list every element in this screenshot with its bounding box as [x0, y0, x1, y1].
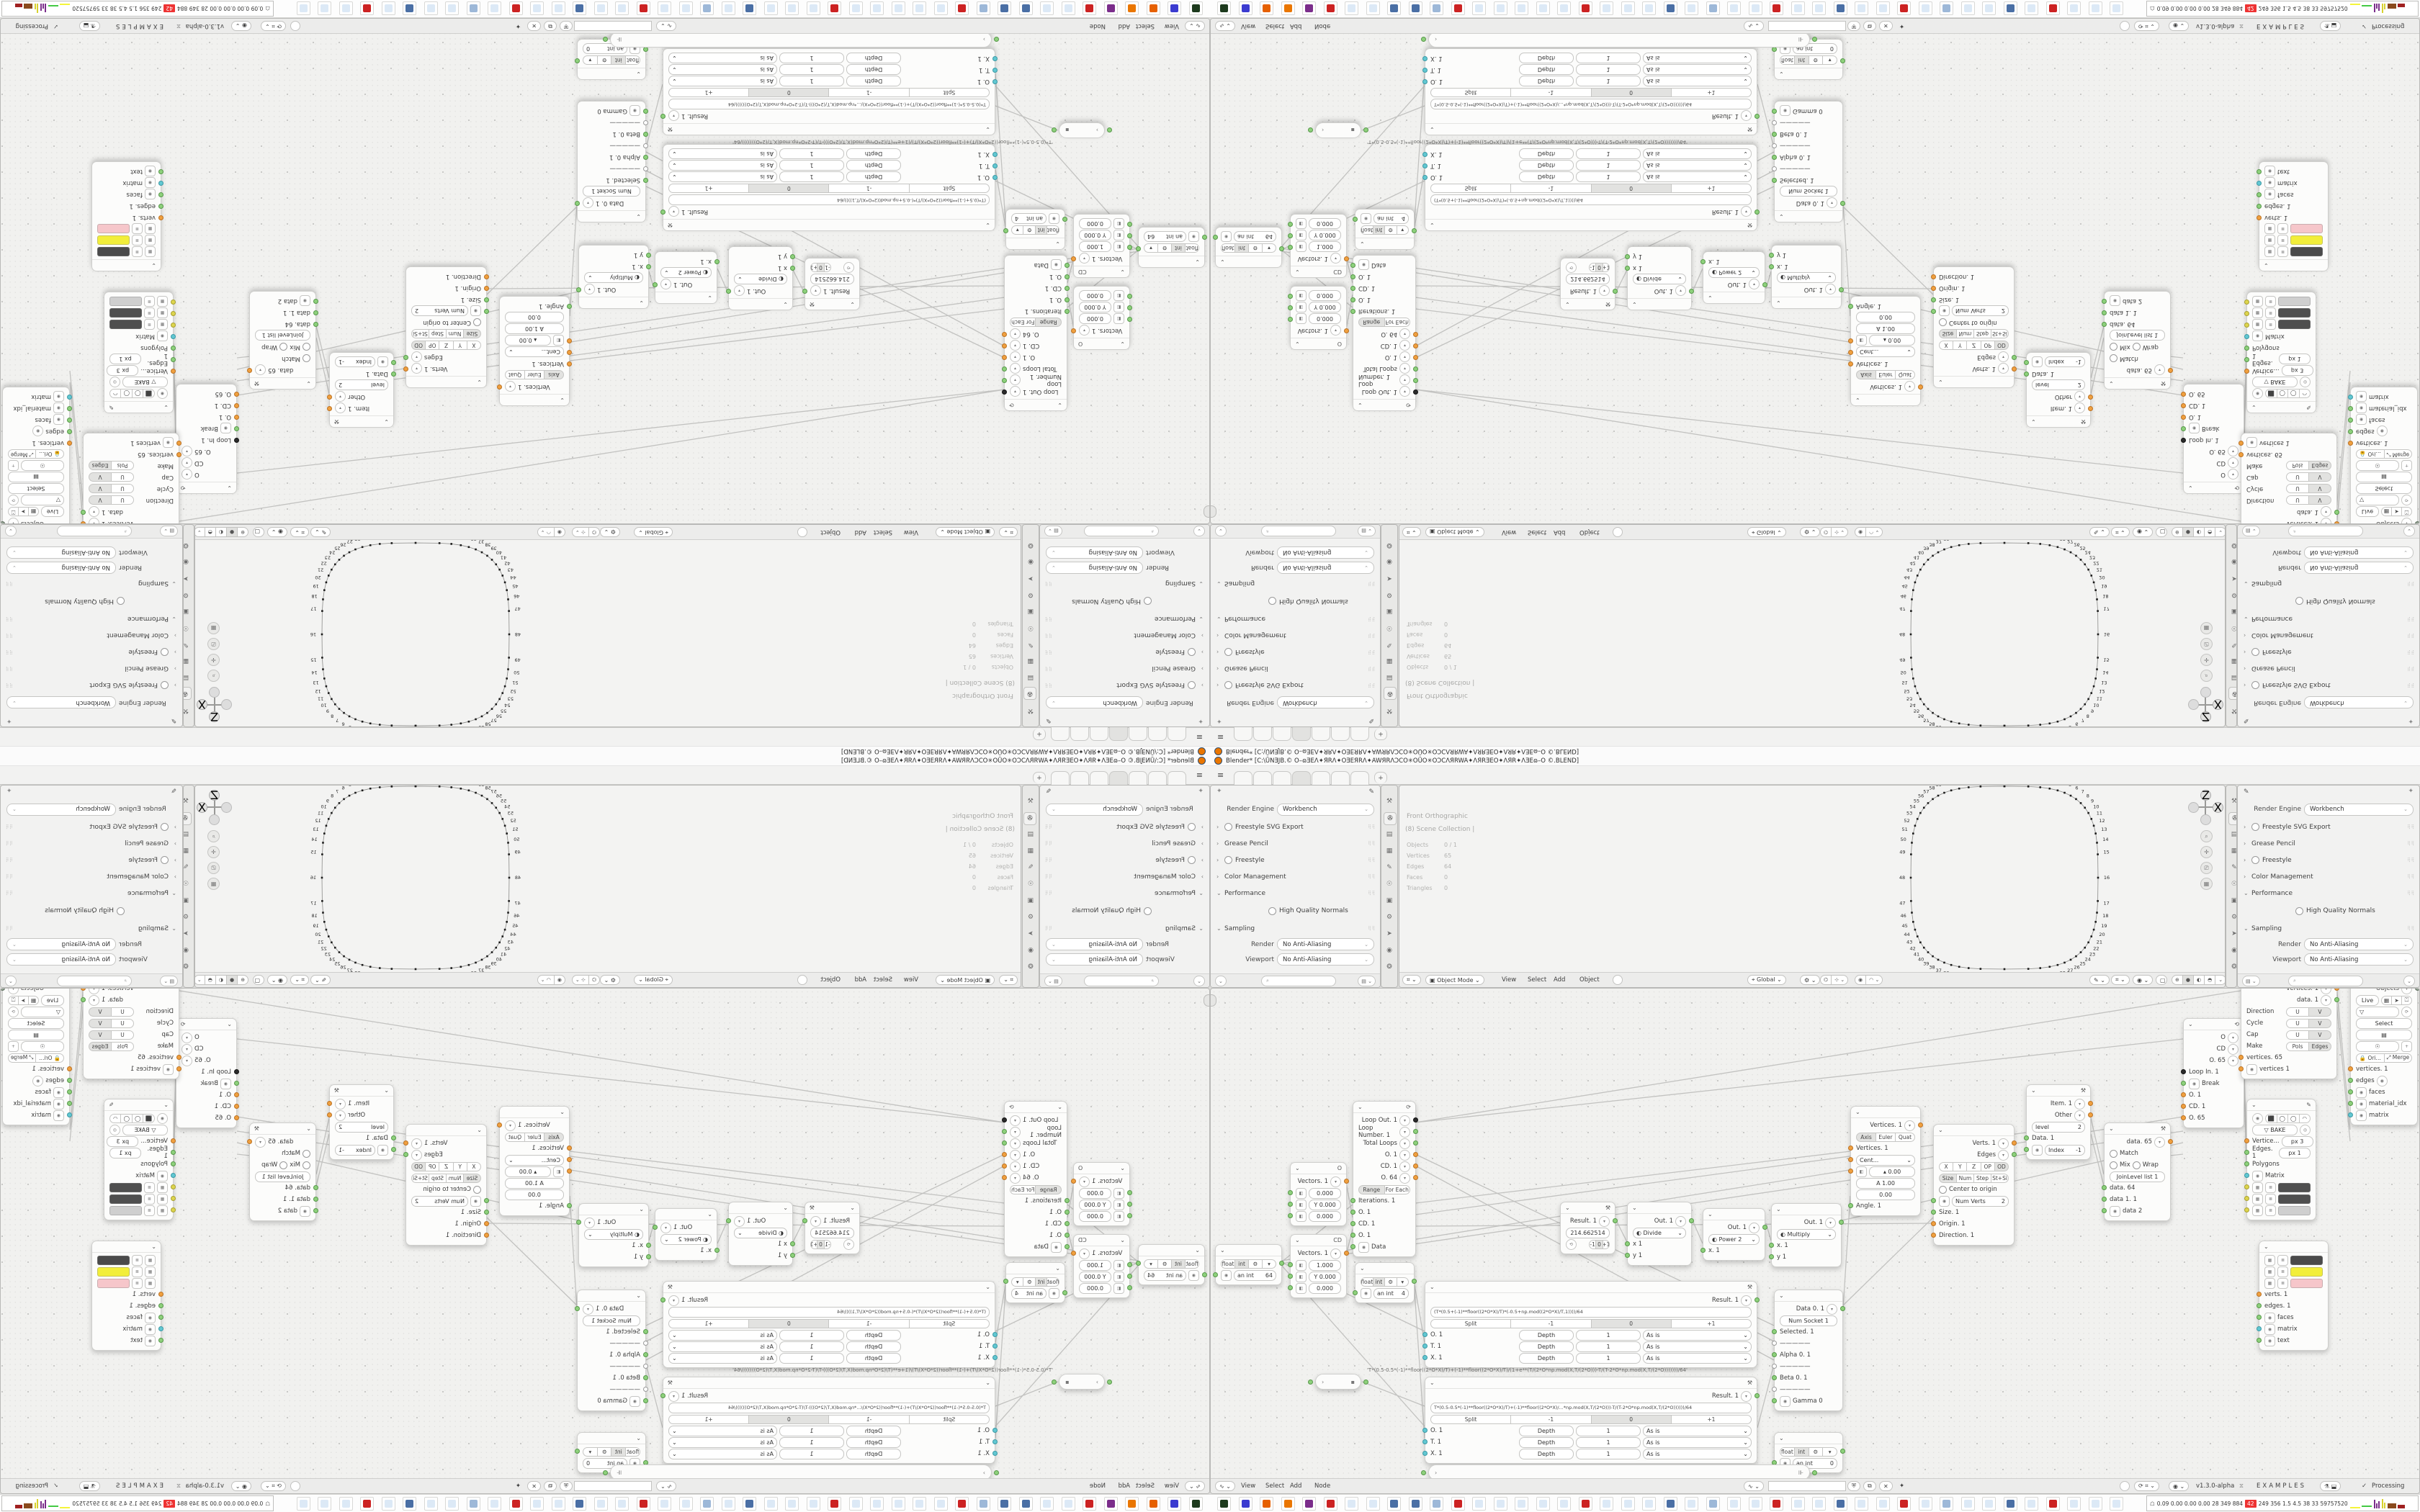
collapse-chevron-icon[interactable]: ⌄: [850, 301, 855, 307]
taskbar-app-note[interactable]: [1876, 1497, 1890, 1511]
value-field[interactable]: 0.000: [1079, 314, 1111, 325]
taskbar-app-gear[interactable]: [1083, 1, 1097, 15]
output-socket[interactable]: [660, 210, 665, 215]
input-socket[interactable]: [643, 47, 648, 52]
gizmo-axis-minus-z[interactable]: [209, 814, 220, 825]
properties-row-color-management[interactable]: ›Color Management⢿⢿: [1211, 627, 1380, 644]
display-toggle-button[interactable]: ⬛: [2265, 1114, 2277, 1123]
collapse-chevron-icon[interactable]: ⌄: [163, 1102, 169, 1108]
node-header[interactable]: ⌄⚒: [805, 298, 859, 310]
segment-button[interactable]: float: [1185, 244, 1199, 253]
properties-tab-icon-5[interactable]: ☉: [2228, 622, 2237, 634]
section-chevron-icon[interactable]: ⌄: [1216, 925, 1222, 932]
option-checkbox[interactable]: [117, 598, 125, 606]
color-swatch[interactable]: [2278, 1183, 2311, 1192]
properties-row-high-quality-normals[interactable]: High Quality Normals: [1, 901, 182, 920]
pin-icon[interactable]: ✦: [1198, 788, 1204, 795]
wrap-dropdown[interactable]: As is⌄: [1643, 149, 1752, 160]
input-socket[interactable]: [2257, 1303, 2262, 1308]
segment-button[interactable]: Num: [1957, 1174, 1974, 1183]
output-socket[interactable]: [1413, 366, 1418, 372]
node-header[interactable]: ⌄O: [1074, 338, 1129, 349]
taskbar-app-purple[interactable]: [1302, 1497, 1316, 1511]
value-field[interactable]: ▴ 0.00: [1869, 336, 1915, 346]
input-socket[interactable]: [391, 372, 396, 377]
label-value-field[interactable]: Num Verts2: [1952, 306, 2009, 317]
taskbar-app-note[interactable]: [2110, 1497, 2123, 1511]
node-number-4[interactable]: ⌄floatint⚙▾◉an int4: [1005, 1262, 1065, 1303]
section-chevron-icon[interactable]: ⌄: [171, 925, 176, 932]
update-group-button[interactable]: ⟳ ⌗ ⌄: [261, 1481, 286, 1491]
socket-dropdown[interactable]: ▾: [1825, 1218, 1836, 1228]
option-checkbox[interactable]: [1144, 598, 1152, 606]
taskbar-app-note[interactable]: [1812, 1497, 1826, 1511]
taskbar-app-note[interactable]: [1041, 1497, 1054, 1511]
socket-dropdown[interactable]: ▾: [2228, 1044, 2238, 1055]
swatch-option-icon[interactable]: ▦: [2252, 1194, 2263, 1205]
table-cell-button[interactable]: Edges: [89, 462, 111, 471]
add-button[interactable]: +: [8, 461, 19, 472]
refresh-icon[interactable]: ⟳: [2401, 495, 2412, 506]
orientation-dropdown[interactable]: ⌖ Global ⌄: [1747, 527, 1786, 537]
segment-button[interactable]: Range: [1358, 318, 1385, 328]
input-socket[interactable]: [313, 1197, 318, 1202]
socket-toggle-icon[interactable]: ◉: [163, 438, 174, 449]
swatch-option-icon[interactable]: ≣: [144, 320, 155, 330]
properties-row-grease-pencil[interactable]: ›Grease Pencil⢿⢿: [1, 660, 182, 677]
gizmo-axis-x[interactable]: X: [197, 802, 207, 813]
section-chevron-icon[interactable]: ›: [1198, 682, 1204, 688]
input-socket[interactable]: [1772, 132, 1777, 137]
properties-row-render[interactable]: RenderNo Anti-Aliasing⌄: [1211, 937, 1380, 952]
socket-dropdown[interactable]: ▾: [734, 286, 745, 297]
slider-icon[interactable]: ◉: [470, 1196, 481, 1207]
collapse-chevron-icon[interactable]: ⌄: [1120, 269, 1125, 275]
properties-row-render-engine[interactable]: Render EngineWorkbench⌄: [1211, 693, 1380, 712]
input-socket[interactable]: [234, 1081, 239, 1086]
output-socket[interactable]: [1840, 201, 1845, 206]
segment-button[interactable]: +1: [1672, 1415, 1752, 1424]
section-chevron-icon[interactable]: ›: [2244, 824, 2249, 830]
viewer-option-button[interactable]: ➤: [18, 508, 28, 517]
section-chevron-icon[interactable]: ›: [1198, 840, 1204, 847]
input-socket[interactable]: [1700, 1248, 1706, 1253]
swatch-option-icon[interactable]: ▦: [2252, 308, 2263, 319]
socket-toggle-icon[interactable]: ◉: [145, 1313, 156, 1323]
taskbar-app-blender[interactable]: [1126, 1, 1139, 15]
socket-toggle-icon[interactable]: ◉: [145, 1336, 156, 1346]
node-formula-node-1[interactable]: ⌄⚒Result. 1▾(T*(0.5+(-1)**floor((2*O*X)/…: [663, 144, 995, 231]
pin-icon[interactable]: ✦: [2408, 717, 2414, 724]
socket-dropdown[interactable]: ▾: [810, 1216, 821, 1227]
input-socket[interactable]: [171, 1196, 176, 1201]
output-socket[interactable]: [403, 1140, 408, 1146]
input-socket[interactable]: [567, 304, 572, 309]
workspace-tab[interactable]: [1109, 771, 1128, 786]
wrap-dropdown[interactable]: As is⌄: [668, 1341, 777, 1352]
socket-dropdown[interactable]: ▾: [2321, 507, 2331, 518]
segment-button[interactable]: float: [1221, 1259, 1235, 1269]
properties-row-freestyle-svg-export[interactable]: ›Freestyle SVG Export⢿⢿: [1211, 677, 1380, 693]
input-socket[interactable]: [2238, 1055, 2244, 1060]
gizmo-axis-minus-x[interactable]: [221, 802, 232, 813]
input-socket[interactable]: [2257, 181, 2262, 186]
input-socket[interactable]: [67, 1089, 72, 1094]
properties-tab-icon-4[interactable]: ✎: [1025, 639, 1036, 650]
node-header[interactable]: ⌄: [578, 68, 645, 79]
output-socket[interactable]: [1052, 127, 1057, 132]
operation-dropdown[interactable]: ◐ Multiply⌄: [1777, 273, 1836, 284]
pin-icon[interactable]: ✦: [1216, 717, 1222, 724]
node-math-power[interactable]: ⌄Out. 1▾◐ Power 2⌄x. 1: [655, 251, 717, 304]
segment-button[interactable]: ⚙: [597, 56, 611, 66]
collapse-chevron-icon[interactable]: ›: [1096, 1379, 1098, 1385]
socket-param[interactable]: px 3: [107, 1136, 138, 1147]
node-line[interactable]: ⌄Verts. 1▾Edges▾XYZOPODSizeNumStepSt+SiC…: [1933, 1124, 2015, 1246]
value-field[interactable]: 0.00: [505, 312, 564, 323]
input-socket[interactable]: [234, 1092, 239, 1097]
table-cell-button[interactable]: V: [2309, 485, 2331, 494]
input-socket[interactable]: [1065, 297, 1070, 302]
input-socket[interactable]: [2181, 1081, 2186, 1086]
taskbar-app-note[interactable]: [1791, 1, 1805, 15]
properties-tab-icon-1[interactable]: ✇: [183, 687, 192, 700]
taskbar-app-note[interactable]: [1041, 1, 1054, 15]
collapse-chevron-icon[interactable]: ⌄: [2109, 380, 2114, 387]
segment-button[interactable]: 0: [748, 1319, 828, 1328]
navigation-gizmo[interactable]: ZX: [197, 790, 232, 824]
mode-dropdown[interactable]: ▣ Object Mode ⌄: [936, 527, 995, 537]
node-header[interactable]: ⌄O: [1074, 1163, 1129, 1174]
collapse-chevron-icon[interactable]: ⌄: [1295, 269, 1300, 275]
value-field[interactable]: ▴ 0.00: [505, 336, 551, 346]
input-socket[interactable]: [2257, 1326, 2262, 1331]
node-formula-node-1[interactable]: ⌄⚒Result. 1▾(T*(0.5+(-1)**floor((2*O*X)/…: [1425, 144, 1757, 231]
swatch-option-icon[interactable]: ≣: [2265, 1182, 2276, 1193]
properties-tab-icon-1[interactable]: ✇: [1023, 687, 1036, 700]
socket-toggle-icon[interactable]: ◉: [2356, 1110, 2367, 1121]
input-socket[interactable]: [2102, 299, 2107, 304]
node-collapsed-node[interactable]: ›▪: [1315, 1374, 1361, 1390]
color-swatch[interactable]: [2278, 1206, 2311, 1215]
input-socket[interactable]: [234, 415, 239, 420]
property-dropdown[interactable]: No Anti-Aliasing⌄: [1046, 953, 1143, 966]
annotate-circle-button[interactable]: [797, 975, 807, 985]
taskbar-app-gear[interactable]: [1770, 1497, 1783, 1511]
count-field[interactable]: 1: [1576, 1449, 1641, 1459]
properties-row-color-management[interactable]: ›Color Management⢿⢿: [1211, 868, 1380, 885]
table-cell-button[interactable]: U: [111, 1030, 134, 1040]
segment-button[interactable]: +1: [668, 1415, 748, 1424]
segment-button[interactable]: 0: [1592, 1415, 1672, 1424]
segment-button[interactable]: 0: [1592, 184, 1672, 194]
node-header[interactable]: ⌄⚒: [250, 377, 315, 389]
input-socket[interactable]: [992, 1355, 998, 1360]
segment-button[interactable]: St+Si: [411, 1174, 429, 1183]
properties-tab-icon-3[interactable]: ▦: [1025, 655, 1036, 667]
collapse-chevron-icon[interactable]: ⌄: [2251, 1102, 2257, 1108]
depth-field[interactable]: Depth: [1519, 1341, 1574, 1352]
socket-toggle-icon[interactable]: ◉: [2264, 1324, 2275, 1335]
input-socket[interactable]: [1772, 178, 1777, 183]
taskbar-app-note[interactable]: [424, 1497, 438, 1511]
node-header[interactable]: ⌄: [1139, 1245, 1204, 1256]
socket-dropdown[interactable]: ▾: [1399, 1127, 1410, 1138]
input-socket[interactable]: [2238, 1066, 2244, 1071]
input-socket[interactable]: [1353, 1290, 1358, 1295]
depth-field[interactable]: Depth: [846, 1353, 901, 1364]
properties-tab-icon-4[interactable]: ✎: [1384, 862, 1395, 873]
wrap-dropdown[interactable]: As is⌄: [668, 1330, 777, 1341]
label-value-field[interactable]: Index-1: [335, 1145, 375, 1156]
input-socket[interactable]: [234, 426, 239, 431]
node-list-join[interactable]: ⌄⚒data. 65▾MatchMixWrapJoinLevel list 1d…: [2104, 291, 2171, 390]
value-field[interactable]: A 1.00: [505, 1178, 564, 1189]
segment-button[interactable]: ⚙: [1023, 226, 1036, 235]
node-collapsed-node[interactable]: ›▪: [1059, 122, 1105, 138]
segment-button[interactable]: St+Si: [1991, 330, 2009, 339]
blank-circle-button[interactable]: [290, 21, 300, 31]
output-socket[interactable]: [1071, 328, 1076, 333]
segment-button[interactable]: Split: [909, 184, 990, 194]
section-checkbox[interactable]: [1224, 648, 1232, 656]
taskbar-app-note[interactable]: [1812, 1, 1826, 15]
properties-tab-icon-10[interactable]: ❂: [183, 539, 192, 551]
wrap-dropdown[interactable]: As is⌄: [1643, 161, 1752, 171]
pin-icon[interactable]: ✦: [6, 788, 12, 795]
input-socket[interactable]: [714, 259, 720, 264]
properties-tab-icon-2[interactable]: ▤: [2228, 829, 2237, 840]
socket-dropdown[interactable]: ▾: [1675, 1216, 1686, 1227]
taskbar-app-note[interactable]: [1345, 1, 1358, 15]
input-socket[interactable]: [1769, 1243, 1774, 1248]
node-header[interactable]: ⌄: [1355, 1263, 1414, 1274]
segment-button[interactable]: int: [1171, 1259, 1185, 1269]
socket-dropdown[interactable]: ▾: [411, 1150, 422, 1161]
node-header[interactable]: ⌄: [92, 259, 161, 271]
taskbar-app-note[interactable]: [424, 1, 438, 15]
workspace-tab[interactable]: [1168, 726, 1186, 741]
section-chevron-icon[interactable]: ›: [2244, 632, 2249, 639]
segment-button[interactable]: 0: [1592, 89, 1672, 98]
collapse-chevron-icon[interactable]: ⌄: [384, 418, 389, 425]
properties-row-performance[interactable]: ⌄Performance⢿⢿: [1211, 611, 1380, 627]
node-vector-in-cd[interactable]: ⌄CDVectors. 1▾◧1.000◧Y 0.000◧0.000: [1290, 1234, 1347, 1298]
socket-toggle-icon[interactable]: ◉: [2356, 392, 2367, 402]
taskbar-app-gear[interactable]: [1897, 1, 1911, 15]
display-toggle-button[interactable]: ◯: [2288, 1114, 2300, 1123]
segment-button[interactable]: -1: [829, 1415, 909, 1424]
segment-button[interactable]: Range: [1036, 318, 1062, 328]
property-dropdown[interactable]: Workbench⌄: [1046, 804, 1143, 816]
collapse-chevron-icon[interactable]: ⌄: [1358, 402, 1363, 408]
properties-tab-icon-1[interactable]: ✇: [2228, 812, 2237, 825]
input-socket[interactable]: [992, 79, 998, 84]
output-socket[interactable]: [327, 406, 332, 411]
output-socket[interactable]: [603, 37, 608, 42]
slider-icon[interactable]: ◉: [1361, 214, 1371, 225]
viewport-menu-object[interactable]: Object: [820, 976, 841, 984]
socket-toggle-icon[interactable]: ◉: [2264, 178, 2275, 189]
collapse-chevron-icon[interactable]: ⌄: [306, 380, 311, 387]
collapse-chevron-icon[interactable]: ⌄: [1779, 1435, 1784, 1441]
segment-button[interactable]: Y: [1953, 1162, 1967, 1171]
section-checkbox[interactable]: [161, 648, 169, 656]
taskbar-app-note[interactable]: [594, 1497, 608, 1511]
socket-dropdown[interactable]: ▾: [1010, 1127, 1021, 1138]
input-socket[interactable]: [2181, 1115, 2186, 1120]
collapse-button[interactable]: ⌄: [2403, 526, 2415, 536]
segment-button[interactable]: +1: [668, 1319, 748, 1328]
slider-icon[interactable]: ◧: [1113, 242, 1124, 253]
socket-dropdown[interactable]: ▾: [1010, 387, 1021, 397]
overlays-button[interactable]: ◉ ⌄: [2133, 527, 2153, 537]
properties-row-render[interactable]: RenderNo Anti-Aliasing⌄: [1, 560, 182, 575]
collapse-chevron-icon[interactable]: ⌄: [477, 1127, 482, 1133]
slider-icon[interactable]: ◧: [1856, 336, 1867, 346]
table-cell-button[interactable]: V: [89, 1007, 111, 1017]
input-socket[interactable]: [1931, 309, 1936, 314]
output-socket[interactable]: [1413, 1152, 1418, 1157]
search-input[interactable]: ⌕: [1084, 526, 1159, 536]
node-header[interactable]: ⌄: [579, 297, 648, 308]
section-chevron-icon[interactable]: ⌄: [1216, 580, 1222, 587]
taskbar-app-cdgear[interactable]: [743, 1497, 757, 1511]
segment-button[interactable]: int: [1795, 1447, 1809, 1457]
node-mesh-viewer[interactable]: ⌄▽Objects▾Live▦➤⏍▽⟳Select▤☉+🔒 Ori...⤢ Me…: [2, 387, 70, 524]
value-field[interactable]: A 1.00: [505, 324, 564, 335]
copy-icon[interactable]: ⧉: [1863, 1481, 1876, 1491]
segment-button[interactable]: OP: [1981, 341, 1995, 351]
node-checkbox[interactable]: [302, 1150, 310, 1158]
input-socket[interactable]: [1127, 1274, 1132, 1279]
socket-dropdown[interactable]: ▾: [668, 1391, 679, 1402]
taskbar-app-note[interactable]: [1642, 1497, 1656, 1511]
input-socket[interactable]: [2102, 1185, 2107, 1190]
properties-row-render-engine[interactable]: Render EngineWorkbench⌄: [1, 800, 182, 819]
slider-icon[interactable]: ◉: [2032, 357, 2043, 368]
socket-dropdown[interactable]: ▾: [255, 1137, 266, 1148]
output-socket[interactable]: [1002, 378, 1007, 383]
input-socket[interactable]: [992, 175, 998, 180]
node-loop-out[interactable]: ⌄⟳Loop Out. 1▾Loop Number. 1▾Total Loops…: [1004, 1101, 1067, 1257]
gizmo-axis-z[interactable]: Z: [209, 711, 220, 722]
socket-toggle-icon[interactable]: ◉: [53, 1087, 64, 1098]
properties-row-freestyle-svg-export[interactable]: ›Freestyle SVG Export⢿⢿: [2238, 819, 2419, 835]
taskbar-app-note[interactable]: [297, 1497, 310, 1511]
property-dropdown[interactable]: Workbench⌄: [1046, 697, 1143, 709]
taskbar-app-gear[interactable]: [828, 1497, 842, 1511]
snap-button[interactable]: ⌬: [588, 527, 600, 537]
properties-tab-icon-6[interactable]: ▣: [2228, 606, 2237, 617]
draft-group-button[interactable]: ◉ ⌄: [2169, 21, 2189, 31]
node-button[interactable]: Num Socket 1: [1780, 186, 1837, 197]
value-field[interactable]: 1.000: [1079, 1260, 1111, 1271]
table-cell-button[interactable]: U: [111, 496, 134, 505]
taskbar-app-note[interactable]: [446, 1497, 460, 1511]
table-cell-button[interactable]: V: [2309, 1007, 2331, 1017]
examples-menu[interactable]: EXAMPLES: [114, 22, 163, 30]
output-socket[interactable]: [1840, 1449, 1845, 1454]
properties-row-performance[interactable]: ⌄Performance⢿⢿: [2238, 885, 2419, 901]
value-field[interactable]: A 1.00: [1856, 1178, 1915, 1189]
color-swatch[interactable]: [97, 248, 130, 257]
slider-icon[interactable]: ◧: [1296, 291, 1307, 302]
shield-icon[interactable]: ⛨: [1847, 1481, 1860, 1491]
output-socket[interactable]: [653, 1225, 658, 1230]
socket-dropdown[interactable]: ▾: [1010, 352, 1021, 363]
input-socket[interactable]: [1772, 47, 1777, 52]
input-socket[interactable]: [1065, 263, 1070, 268]
output-socket[interactable]: [1413, 1175, 1418, 1180]
slider-icon[interactable]: ◧: [1113, 1283, 1124, 1294]
node-loop-in[interactable]: ⌄⟲O▾CD▾O. 65▾Loop In. 1◉BreakO. 1CD. 1O.…: [176, 384, 237, 494]
collapse-chevron-icon[interactable]: ⌄: [1430, 126, 1435, 132]
hamburger-menu-icon[interactable]: ≡: [1217, 732, 1224, 742]
depth-field[interactable]: Depth: [846, 1437, 901, 1448]
node-number-64[interactable]: ⌄floatint⚙▾◉an int64: [1138, 1244, 1205, 1285]
node-header[interactable]: ⌄⚒: [663, 123, 995, 135]
viewport-nav-button-2[interactable]: ⎚: [207, 862, 220, 874]
collapse-chevron-icon[interactable]: ⌄: [2188, 1021, 2193, 1027]
collapse-chevron-icon[interactable]: ⌄: [1430, 222, 1435, 228]
value-field[interactable]: ▴ 0.00: [505, 1166, 551, 1177]
viewport-menu-select[interactable]: Select: [1528, 528, 1546, 536]
properties-row-grease-pencil[interactable]: ›Grease Pencil⢿⢿: [2238, 835, 2419, 852]
node-header[interactable]: ⌄⚒: [330, 415, 393, 427]
xray-button[interactable]: ▢: [2156, 527, 2167, 537]
taskbar-app-calc[interactable]: [977, 1, 990, 15]
label-value-field[interactable]: an int64: [1234, 232, 1276, 243]
taskbar-app-disk[interactable]: [1168, 1497, 1182, 1511]
gizmos-button[interactable]: ⌗ ⌄: [290, 527, 309, 537]
section-chevron-icon[interactable]: ⌄: [1198, 580, 1204, 587]
taskbar-app-note[interactable]: [2025, 1497, 2038, 1511]
socket-dropdown[interactable]: ▾: [1827, 198, 1837, 209]
input-socket[interactable]: [1931, 297, 1936, 302]
socket-dropdown[interactable]: ▾: [584, 1218, 595, 1228]
value-field[interactable]: 0.000: [1079, 291, 1111, 302]
node-header[interactable]: ⌄: [1139, 256, 1204, 267]
segment-button[interactable]: OP: [425, 1162, 439, 1171]
segment-button[interactable]: Split: [909, 89, 990, 98]
snap-settings-button[interactable]: ⚙ ⌄: [1800, 975, 1820, 985]
node-header[interactable]: ⌄⚒: [1425, 1282, 1757, 1293]
swatch-option-icon[interactable]: ▦: [2252, 1205, 2263, 1216]
segment-button[interactable]: ▾: [1263, 1259, 1276, 1269]
workspace-tab[interactable]: [1234, 726, 1252, 741]
copy-icon[interactable]: ⧉: [544, 1481, 557, 1491]
tree-select-icon[interactable]: ∿ ⌄: [1744, 1481, 1764, 1491]
input-socket[interactable]: [1772, 109, 1777, 114]
node-list-item[interactable]: ⌄⚒Item. 1▾Other▾level2Data. 1◉Index-1: [329, 352, 394, 428]
node-data-sockets[interactable]: ⌄Data 0. 1▾Num Socket 1Selected. 1—————A…: [577, 1290, 646, 1411]
color-swatch[interactable]: [109, 320, 142, 330]
operation-dropdown[interactable]: ◐ Divide⌄: [734, 1228, 787, 1238]
input-socket[interactable]: [1931, 1233, 1936, 1238]
slider-icon[interactable]: ◉: [1049, 1288, 1059, 1299]
taskbar-app-blender[interactable]: [1281, 1497, 1295, 1511]
collapse-chevron-icon[interactable]: ⌄: [151, 262, 156, 269]
socket-dropdown[interactable]: ▾: [1399, 1173, 1410, 1184]
segment-button[interactable]: -1: [829, 184, 909, 194]
output-socket[interactable]: [1413, 1164, 1418, 1169]
properties-tab-icon-10[interactable]: ❂: [1384, 961, 1395, 973]
segment-button[interactable]: ⚙: [1157, 1259, 1171, 1269]
slider-icon[interactable]: ◧: [1296, 1272, 1307, 1282]
input-socket[interactable]: [2348, 1112, 2353, 1117]
input-socket[interactable]: [391, 1135, 396, 1140]
